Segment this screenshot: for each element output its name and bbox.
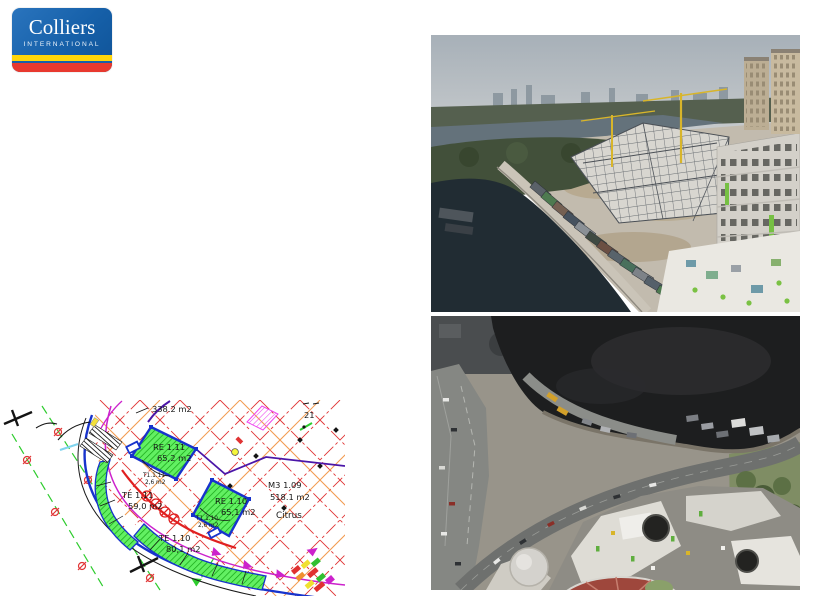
label-re-1-11-name: RE 1.11 [153, 442, 185, 452]
logo-red-stripe [12, 63, 112, 72]
label-te-1-11-name: TE 1.11 [121, 490, 153, 500]
label-t1-1-10-area: 2,6 m2 [198, 523, 219, 529]
logo-brand-text: Colliers [29, 17, 96, 38]
label-t1-1-11-name: T1.1.11 [142, 473, 165, 479]
label-te-1-10-area: 80,1 m2 [166, 544, 200, 554]
label-tenant-citrus: Citrus [276, 511, 302, 521]
label-m3-1-09-area: 518.1 m2 [270, 492, 310, 502]
label-total-area: 338.2 m2 [152, 404, 192, 414]
purple-boundary [196, 449, 345, 474]
label-t1-1-11-area: 2,6 m2 [145, 480, 166, 486]
photo-top-aerial [431, 35, 800, 312]
photo-bottom-aerial [431, 316, 800, 590]
label-re-1-10-area: 65,1 m2 [221, 507, 255, 517]
survey-arrowhead [191, 578, 202, 586]
slide: Colliers INTERNATIONAL [0, 0, 822, 596]
yellow-utility-marker [232, 449, 239, 456]
label-re-1-11-area: 65,2 m2 [157, 453, 191, 463]
label-te-1-10-name: TE 1.10 [158, 533, 190, 543]
magenta-hatched-zone [247, 406, 278, 430]
logo-subtitle-text: INTERNATIONAL [24, 41, 101, 48]
logo-text-block: Colliers INTERNATIONAL [12, 8, 112, 55]
colliers-logo: Colliers INTERNATIONAL [12, 8, 112, 72]
label-re-1-10-name: RE 1.10 [215, 496, 247, 506]
label-grid-ref: 21 [304, 410, 315, 420]
site-plan: 338.2 m2 21 RE 1.11 65,2 m2 T1.1.11 2,6 … [0, 400, 345, 596]
label-te-1-11-area: 59,0 m2 [128, 501, 162, 511]
label-t1-1-10-name: T1.1.10 [195, 516, 218, 522]
label-m3-1-09-name: M3 1.09 [268, 480, 302, 490]
stair-hatches [36, 418, 122, 463]
green-tick-marker [300, 423, 312, 430]
residential-highrises [744, 49, 800, 134]
